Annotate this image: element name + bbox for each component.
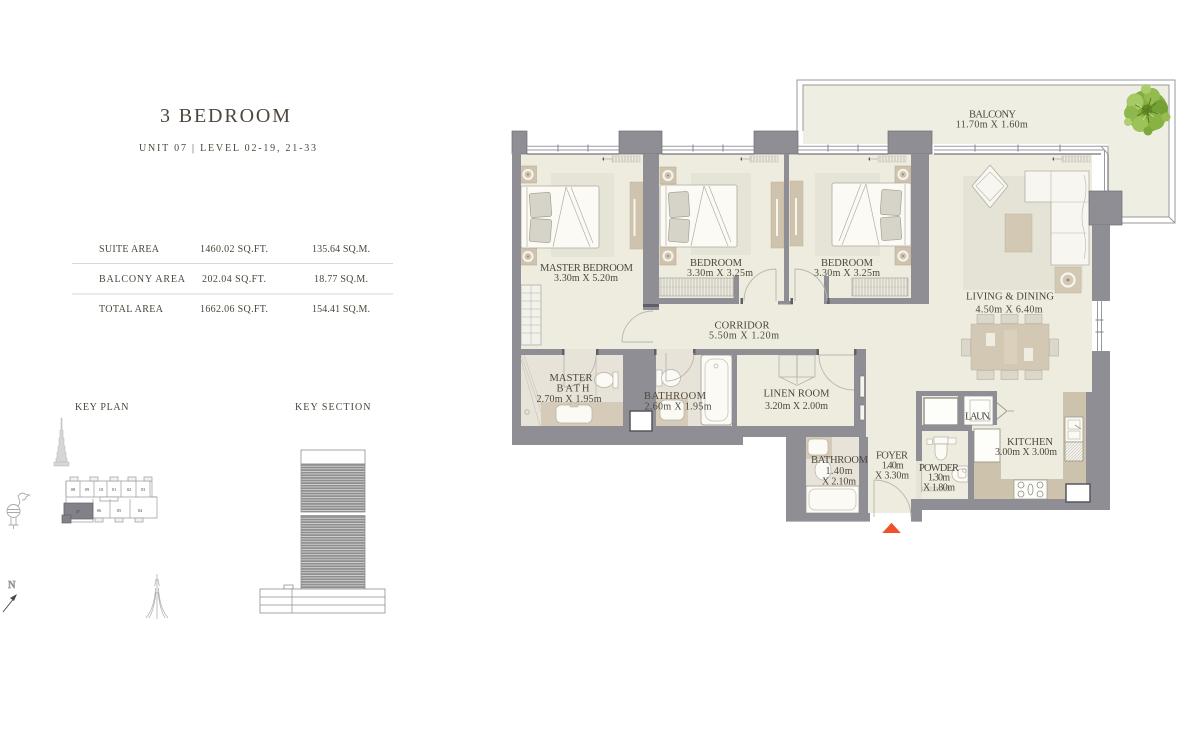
svg-text:N: N bbox=[8, 580, 16, 591]
svg-text:3.30m X 3.25m: 3.30m X 3.25m bbox=[814, 268, 880, 279]
svg-text:02: 02 bbox=[127, 487, 132, 492]
svg-text:2.70m X 1.95m: 2.70m X 1.95m bbox=[537, 394, 602, 405]
svg-text:TOTAL AREA: TOTAL AREA bbox=[99, 304, 164, 315]
svg-text:SUITE AREA: SUITE AREA bbox=[99, 244, 160, 255]
svg-text:MASTER: MASTER bbox=[550, 373, 593, 384]
svg-text:06: 06 bbox=[97, 508, 102, 513]
svg-text:3.30m X 5.20m: 3.30m X 5.20m bbox=[554, 273, 618, 284]
svg-text:03: 03 bbox=[141, 487, 146, 492]
svg-text:07: 07 bbox=[76, 509, 81, 514]
svg-text:1460.02 SQ.FT.: 1460.02 SQ.FT. bbox=[200, 244, 268, 255]
svg-text:08: 08 bbox=[71, 487, 76, 492]
svg-text:UNIT 07 | LEVEL 02-19, 21-33: UNIT 07 | LEVEL 02-19, 21-33 bbox=[139, 143, 316, 154]
svg-text:3 BEDROOM: 3 BEDROOM bbox=[160, 105, 292, 127]
svg-text:LAUN.: LAUN. bbox=[965, 412, 991, 423]
svg-text:01: 01 bbox=[112, 487, 117, 492]
svg-text:18.77 SQ.M.: 18.77 SQ.M. bbox=[314, 274, 368, 285]
svg-text:X 3.30m: X 3.30m bbox=[875, 471, 909, 482]
svg-text:2.60m X 1.95m: 2.60m X 1.95m bbox=[645, 402, 712, 413]
svg-text:3.00m X 3.00m: 3.00m X 3.00m bbox=[995, 447, 1057, 458]
svg-text:X 1.80m: X 1.80m bbox=[923, 483, 955, 494]
svg-text:1662.06 SQ.FT.: 1662.06 SQ.FT. bbox=[200, 304, 268, 315]
svg-text:202.04 SQ.FT.: 202.04 SQ.FT. bbox=[202, 274, 266, 285]
svg-text:09: 09 bbox=[85, 487, 90, 492]
svg-text:BATHROOM: BATHROOM bbox=[811, 455, 869, 466]
svg-text:4.50m X 6.40m: 4.50m X 6.40m bbox=[976, 305, 1043, 316]
svg-text:154.41 SQ.M.: 154.41 SQ.M. bbox=[312, 304, 370, 315]
svg-text:04: 04 bbox=[138, 508, 143, 513]
svg-text:X 2.10m: X 2.10m bbox=[822, 477, 856, 488]
svg-text:11.70m X 1.60m: 11.70m X 1.60m bbox=[956, 120, 1028, 131]
svg-text:LIVING & DINING: LIVING & DINING bbox=[966, 292, 1054, 303]
svg-text:LINEN ROOM: LINEN ROOM bbox=[764, 389, 831, 400]
svg-text:05: 05 bbox=[117, 508, 122, 513]
svg-text:5.50m X 1.20m: 5.50m X 1.20m bbox=[709, 331, 779, 342]
svg-text:3.20m X 2.00m: 3.20m X 2.00m bbox=[765, 401, 828, 412]
svg-text:BATH: BATH bbox=[557, 384, 590, 395]
svg-text:1.40m: 1.40m bbox=[826, 466, 853, 477]
svg-text:135.64 SQ.M.: 135.64 SQ.M. bbox=[312, 244, 370, 255]
svg-text:10: 10 bbox=[99, 487, 104, 492]
svg-text:BALCONY AREA: BALCONY AREA bbox=[99, 274, 186, 285]
svg-text:KEY SECTION: KEY SECTION bbox=[295, 402, 372, 413]
svg-text:3.30m X 3.25m: 3.30m X 3.25m bbox=[687, 268, 753, 279]
svg-text:BATHROOM: BATHROOM bbox=[644, 391, 707, 402]
svg-text:KEY PLAN: KEY PLAN bbox=[75, 402, 130, 413]
